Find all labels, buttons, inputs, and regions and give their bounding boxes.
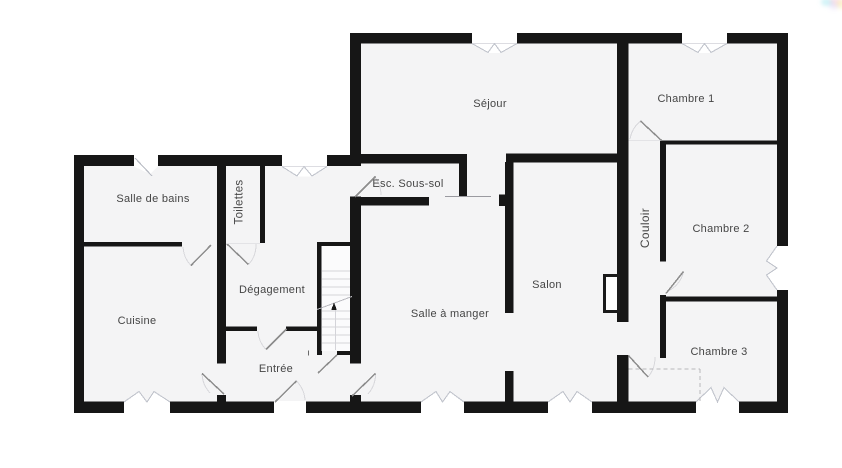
svg-text:Cuisine: Cuisine [118,315,157,327]
svg-text:Entrée: Entrée [259,363,293,375]
svg-text:Chambre 1: Chambre 1 [657,93,714,105]
svg-text:Toilettes: Toilettes [234,180,246,225]
svg-text:Séjour: Séjour [473,98,507,110]
svg-text:Chambre 2: Chambre 2 [692,223,749,235]
svg-text:Salle de bains: Salle de bains [116,193,190,205]
svg-text:Chambre 3: Chambre 3 [690,346,747,358]
svg-text:Esc. Sous-sol: Esc. Sous-sol [372,178,443,190]
svg-text:Salon: Salon [532,279,562,291]
svg-text:Couloir: Couloir [638,208,652,248]
svg-text:Dégagement: Dégagement [239,284,305,296]
svg-text:Salle à manger: Salle à manger [411,308,489,320]
